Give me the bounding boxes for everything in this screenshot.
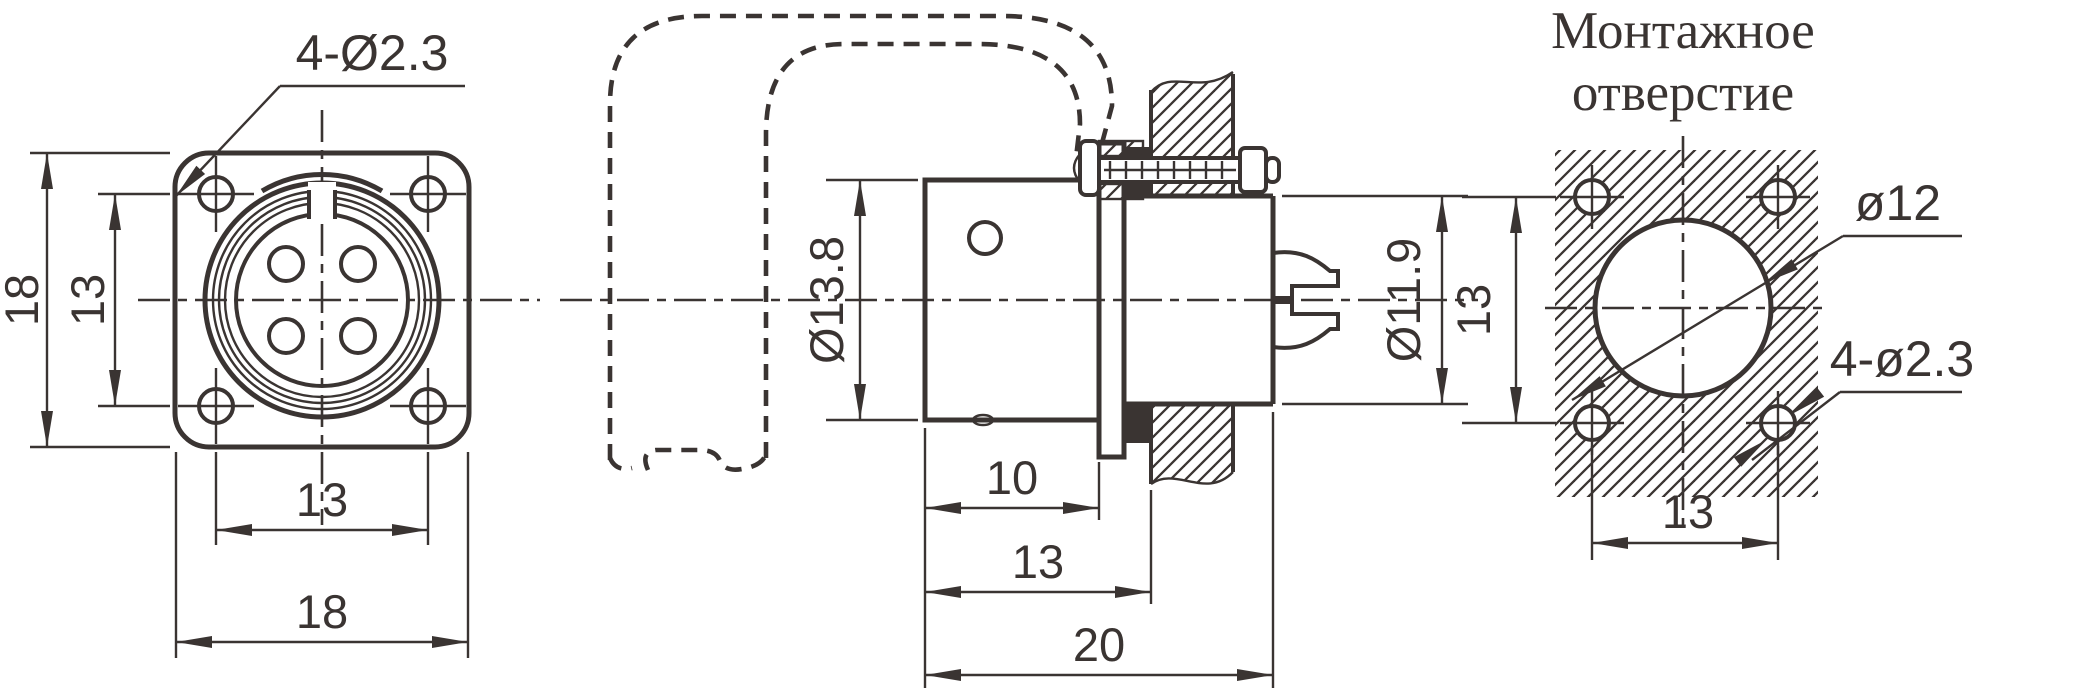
drawing-canvas: 4-Ø2.3 18 13 13	[0, 0, 2086, 693]
screw-head	[1080, 141, 1099, 195]
flange-section-hatch-bottom	[1099, 184, 1143, 199]
technical-drawing-connector: 4-Ø2.3 18 13 13	[0, 0, 2086, 693]
mounting-hole-bottom-right	[390, 368, 466, 444]
pin-4	[341, 319, 375, 353]
keyway-blank	[308, 182, 336, 218]
screw-tip	[1266, 158, 1279, 182]
dim-text-13-side: 13	[1012, 535, 1064, 588]
dim-text-13-h: 13	[296, 473, 348, 526]
petal-lower	[1273, 302, 1338, 348]
mounting-hole-view: Монтажное отверстие	[1447, 2, 1974, 560]
dim-text-18-v: 18	[0, 274, 48, 326]
dim-text-mount-13-v: 13	[1447, 284, 1500, 336]
front-hole-label: 4-Ø2.3	[296, 25, 449, 81]
petal-upper	[1273, 252, 1338, 298]
mounting-hole-bottom-left	[178, 368, 254, 444]
panel-lower-block	[1151, 404, 1233, 484]
dim-text-13-v: 13	[61, 274, 114, 326]
rear-body	[925, 180, 1099, 425]
mounting-hole-top-left	[178, 156, 254, 232]
mounting-title-line2: отверстие	[1572, 64, 1794, 122]
dim-text-20: 20	[1073, 618, 1125, 671]
pin-3	[269, 319, 303, 353]
front-view: 4-Ø2.3 18 13 13	[0, 25, 540, 658]
dim-text-10: 10	[986, 451, 1038, 504]
dim-mount-v-13: 13	[1447, 197, 1556, 423]
screw-nut	[1240, 148, 1266, 192]
dim-text-panel-hole: ø12	[1855, 175, 1941, 231]
dim-text-screw-holes: 4-ø2.3	[1830, 331, 1975, 387]
side-view: Ø13.8 Ø11.9 10 13 20	[560, 16, 1478, 688]
mounting-title-line1: Монтажное	[1551, 2, 1815, 60]
pin-1	[269, 247, 303, 281]
dim-text-18-h: 18	[296, 585, 348, 638]
mounting-hole-top-right	[390, 156, 466, 232]
dim-text-mount-13-h: 13	[1662, 485, 1714, 538]
phantom-cable-mouth	[610, 450, 766, 470]
dim-side-10: 10	[925, 451, 1099, 520]
pin-2	[341, 247, 375, 281]
flange-section-hatch-top	[1099, 141, 1143, 156]
